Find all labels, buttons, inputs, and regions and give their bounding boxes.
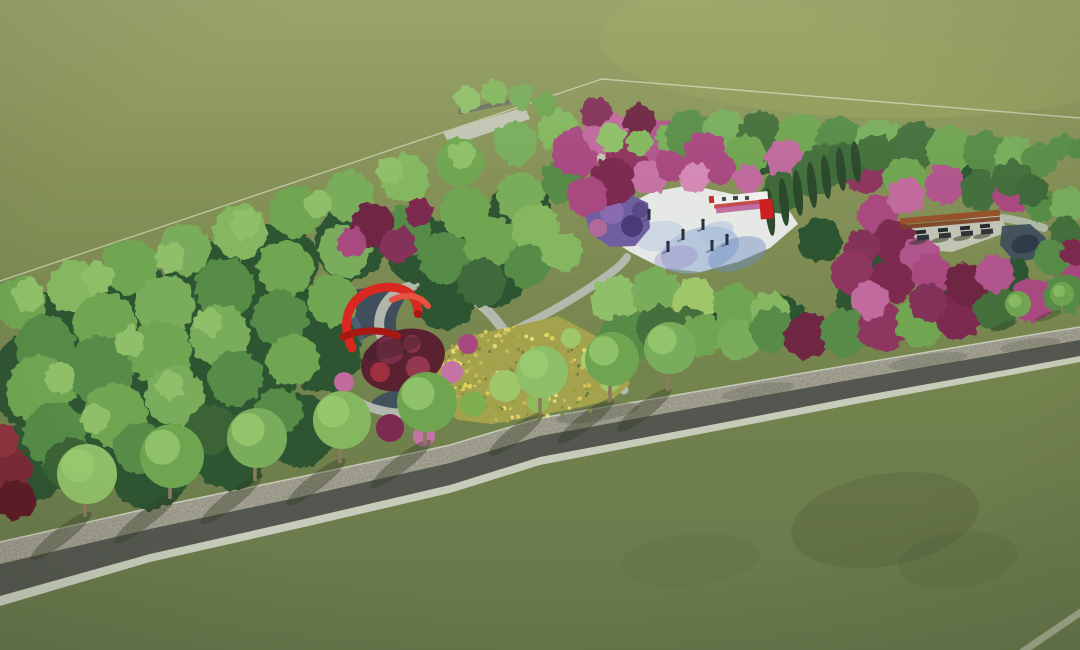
park-aerial-rendering bbox=[0, 0, 1080, 650]
rendering-svg bbox=[0, 0, 1080, 650]
photo-overlay bbox=[0, 0, 1080, 650]
